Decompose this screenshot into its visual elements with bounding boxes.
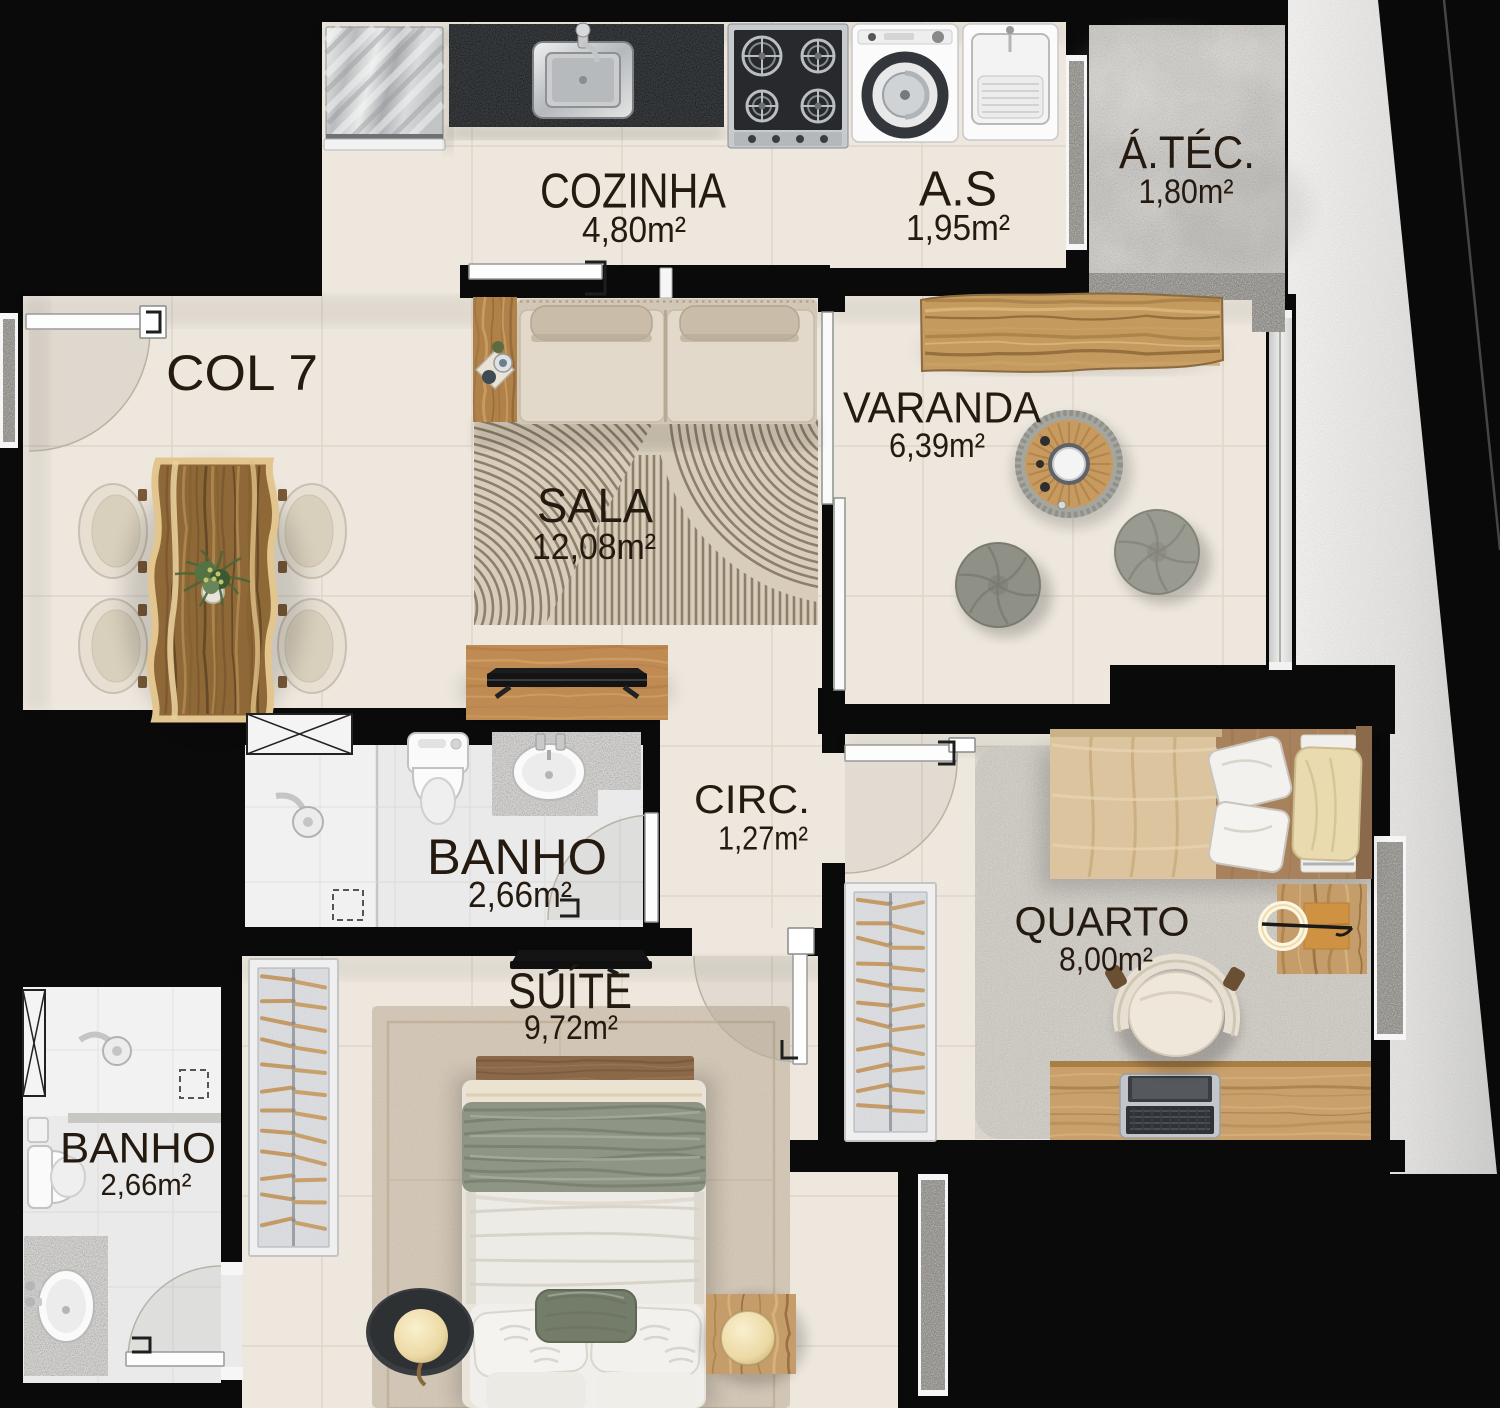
svg-text:4,80m²: 4,80m² — [582, 209, 686, 250]
svg-text:QUARTO: QUARTO — [1015, 899, 1190, 945]
svg-text:2,66m²: 2,66m² — [101, 1167, 192, 1202]
svg-text:1,80m²: 1,80m² — [1139, 173, 1234, 211]
svg-text:1,95m²: 1,95m² — [906, 207, 1010, 248]
svg-text:2,66m²: 2,66m² — [468, 874, 572, 915]
svg-text:1,27m²: 1,27m² — [718, 820, 808, 857]
svg-text:6,39m²: 6,39m² — [889, 427, 985, 465]
svg-text:BANHO: BANHO — [60, 1124, 216, 1172]
svg-text:9,72m²: 9,72m² — [524, 1009, 618, 1047]
svg-text:COL 7: COL 7 — [166, 345, 318, 401]
svg-text:VARANDA: VARANDA — [843, 384, 1042, 433]
svg-text:Á.TÉC.: Á.TÉC. — [1119, 127, 1255, 178]
svg-text:8,00m²: 8,00m² — [1059, 941, 1153, 978]
svg-text:CIRC.: CIRC. — [694, 778, 810, 822]
svg-text:12,08m²: 12,08m² — [532, 526, 656, 567]
